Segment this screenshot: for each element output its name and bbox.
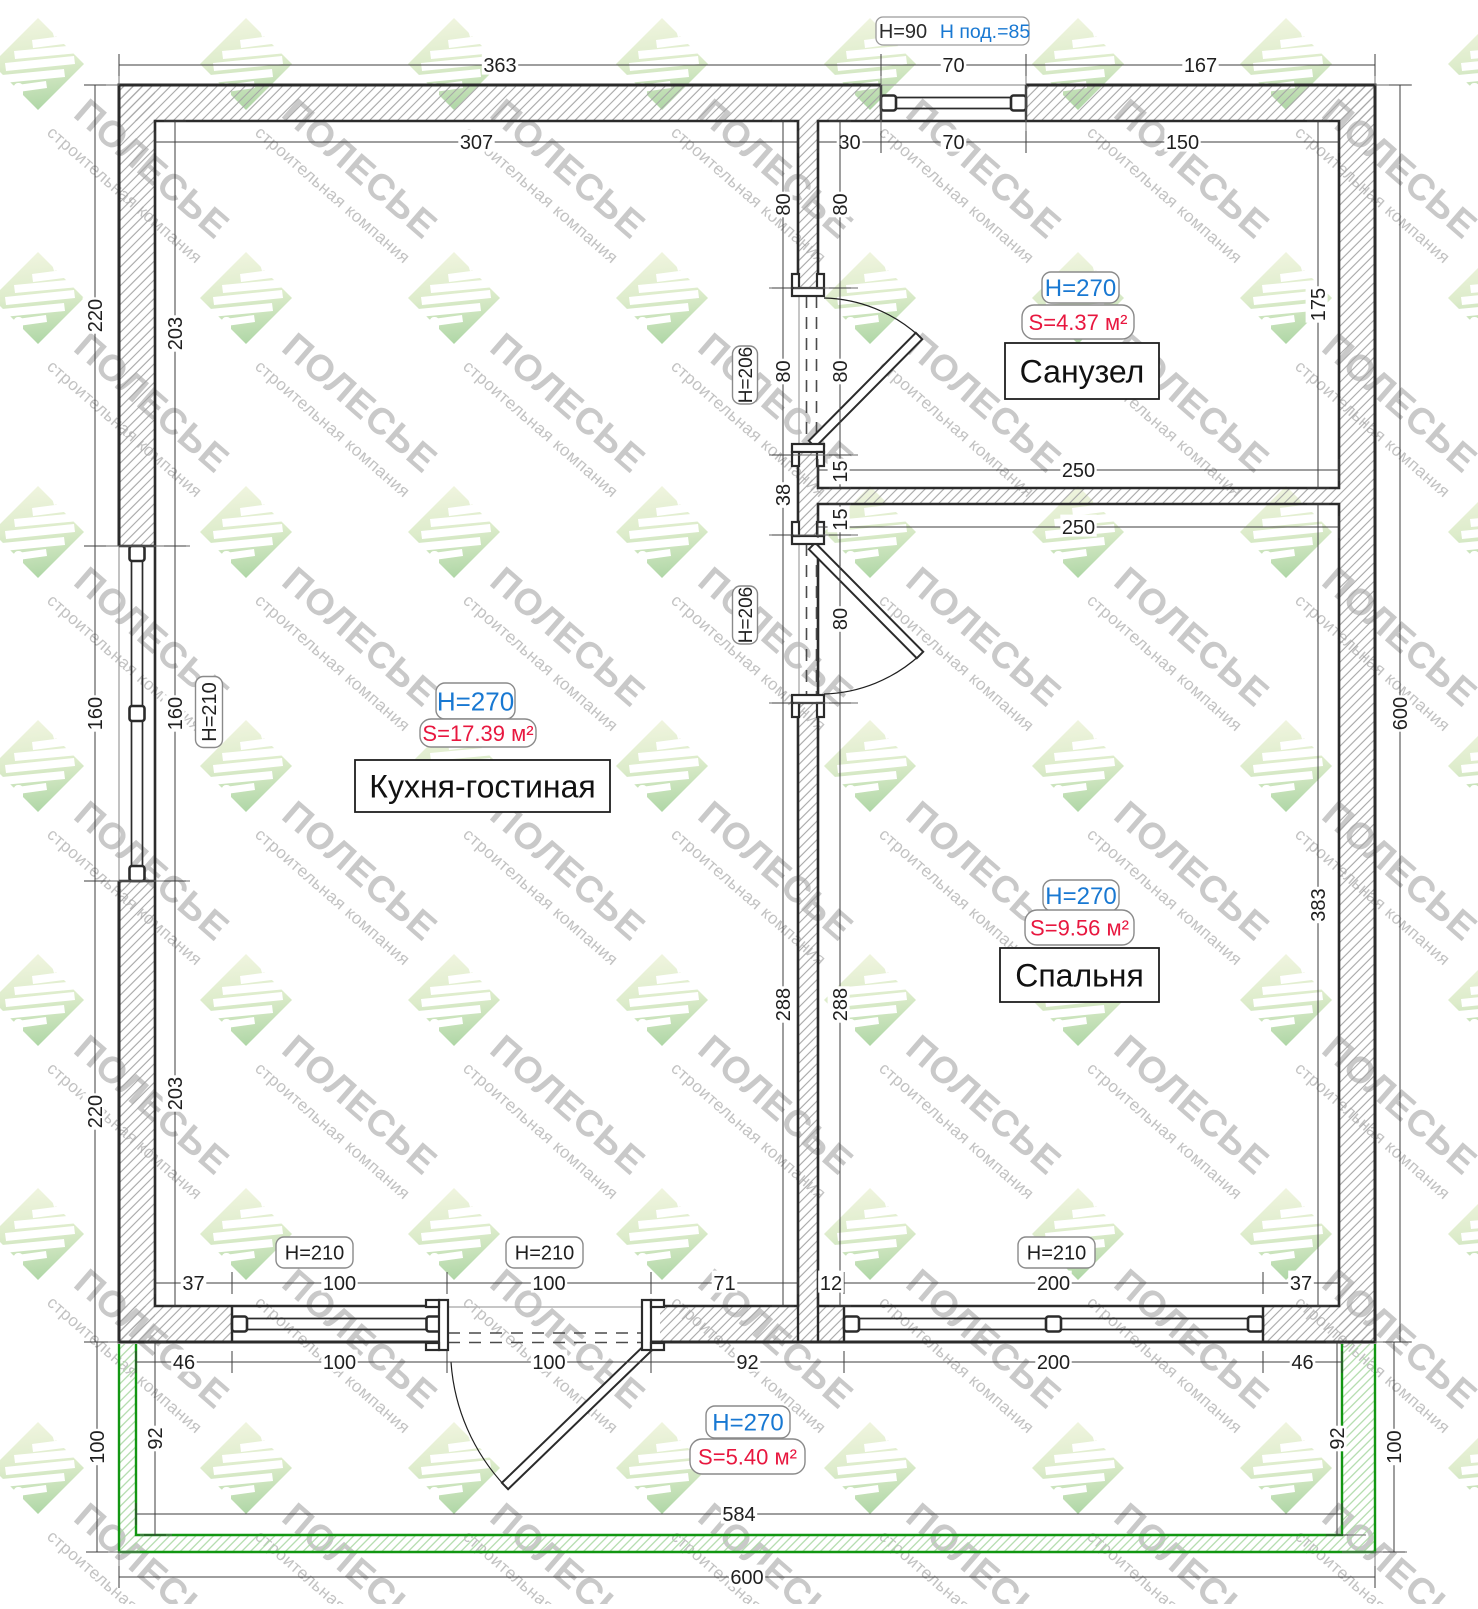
svg-text:100: 100 [87,1430,109,1463]
svg-text:220: 220 [85,299,107,332]
svg-text:H=270: H=270 [712,1410,783,1437]
svg-text:92: 92 [145,1427,167,1449]
svg-text:46: 46 [173,1352,195,1374]
svg-text:363: 363 [483,55,516,77]
svg-text:288: 288 [773,988,795,1021]
svg-text:S=4.37 м²: S=4.37 м² [1029,310,1128,335]
svg-text:H=210: H=210 [285,1243,345,1265]
svg-text:37: 37 [182,1273,204,1295]
svg-text:46: 46 [1291,1352,1313,1374]
svg-text:288: 288 [830,988,852,1021]
svg-text:167: 167 [1184,55,1217,77]
svg-text:S=9.56 м²: S=9.56 м² [1030,915,1129,940]
svg-text:383: 383 [1308,888,1330,921]
svg-text:H=270: H=270 [1045,275,1116,302]
svg-text:H=210: H=210 [199,682,221,742]
svg-text:600: 600 [730,1567,763,1589]
svg-text:80: 80 [773,193,795,215]
svg-text:160: 160 [85,697,107,730]
svg-text:200: 200 [1037,1352,1070,1374]
svg-text:100: 100 [532,1273,565,1295]
svg-text:70: 70 [942,132,964,154]
svg-text:Н под.=85: Н под.=85 [940,21,1031,43]
svg-text:307: 307 [460,132,493,154]
svg-text:80: 80 [830,360,852,382]
svg-text:38: 38 [773,484,795,506]
svg-text:175: 175 [1308,288,1330,321]
svg-text:H=210: H=210 [515,1243,575,1265]
svg-text:100: 100 [323,1273,356,1295]
svg-text:Санузел: Санузел [1020,354,1145,390]
svg-text:S=5.40 м²: S=5.40 м² [698,1444,797,1469]
svg-text:S=17.39 м²: S=17.39 м² [422,721,533,746]
svg-text:15: 15 [830,460,852,482]
svg-text:Кухня-гостиная: Кухня-гостиная [369,769,595,805]
svg-text:H=90: H=90 [879,21,927,43]
svg-text:71: 71 [713,1273,735,1295]
svg-text:200: 200 [1037,1273,1070,1295]
svg-text:H=206: H=206 [736,347,757,404]
svg-text:203: 203 [165,1077,187,1110]
svg-text:15: 15 [830,508,852,530]
svg-text:160: 160 [165,697,187,730]
svg-text:Спальня: Спальня [1015,958,1144,994]
svg-text:H=206: H=206 [736,587,757,644]
svg-text:600: 600 [1390,697,1412,730]
svg-text:250: 250 [1062,460,1095,482]
svg-text:12: 12 [820,1273,842,1295]
svg-text:584: 584 [722,1504,755,1526]
svg-text:H=270: H=270 [1045,883,1116,910]
svg-text:80: 80 [830,608,852,630]
svg-text:80: 80 [773,360,795,382]
svg-text:150: 150 [1166,132,1199,154]
svg-text:92: 92 [736,1352,758,1374]
svg-text:250: 250 [1062,517,1095,539]
svg-text:203: 203 [165,317,187,350]
svg-text:220: 220 [85,1095,107,1128]
svg-text:100: 100 [1384,1430,1406,1463]
svg-text:80: 80 [830,193,852,215]
svg-text:100: 100 [532,1352,565,1374]
svg-text:H=270: H=270 [437,686,514,716]
svg-text:100: 100 [323,1352,356,1374]
svg-text:37: 37 [1290,1273,1312,1295]
svg-text:70: 70 [942,55,964,77]
svg-text:92: 92 [1327,1427,1349,1449]
svg-text:30: 30 [838,132,860,154]
svg-text:H=210: H=210 [1027,1243,1087,1265]
